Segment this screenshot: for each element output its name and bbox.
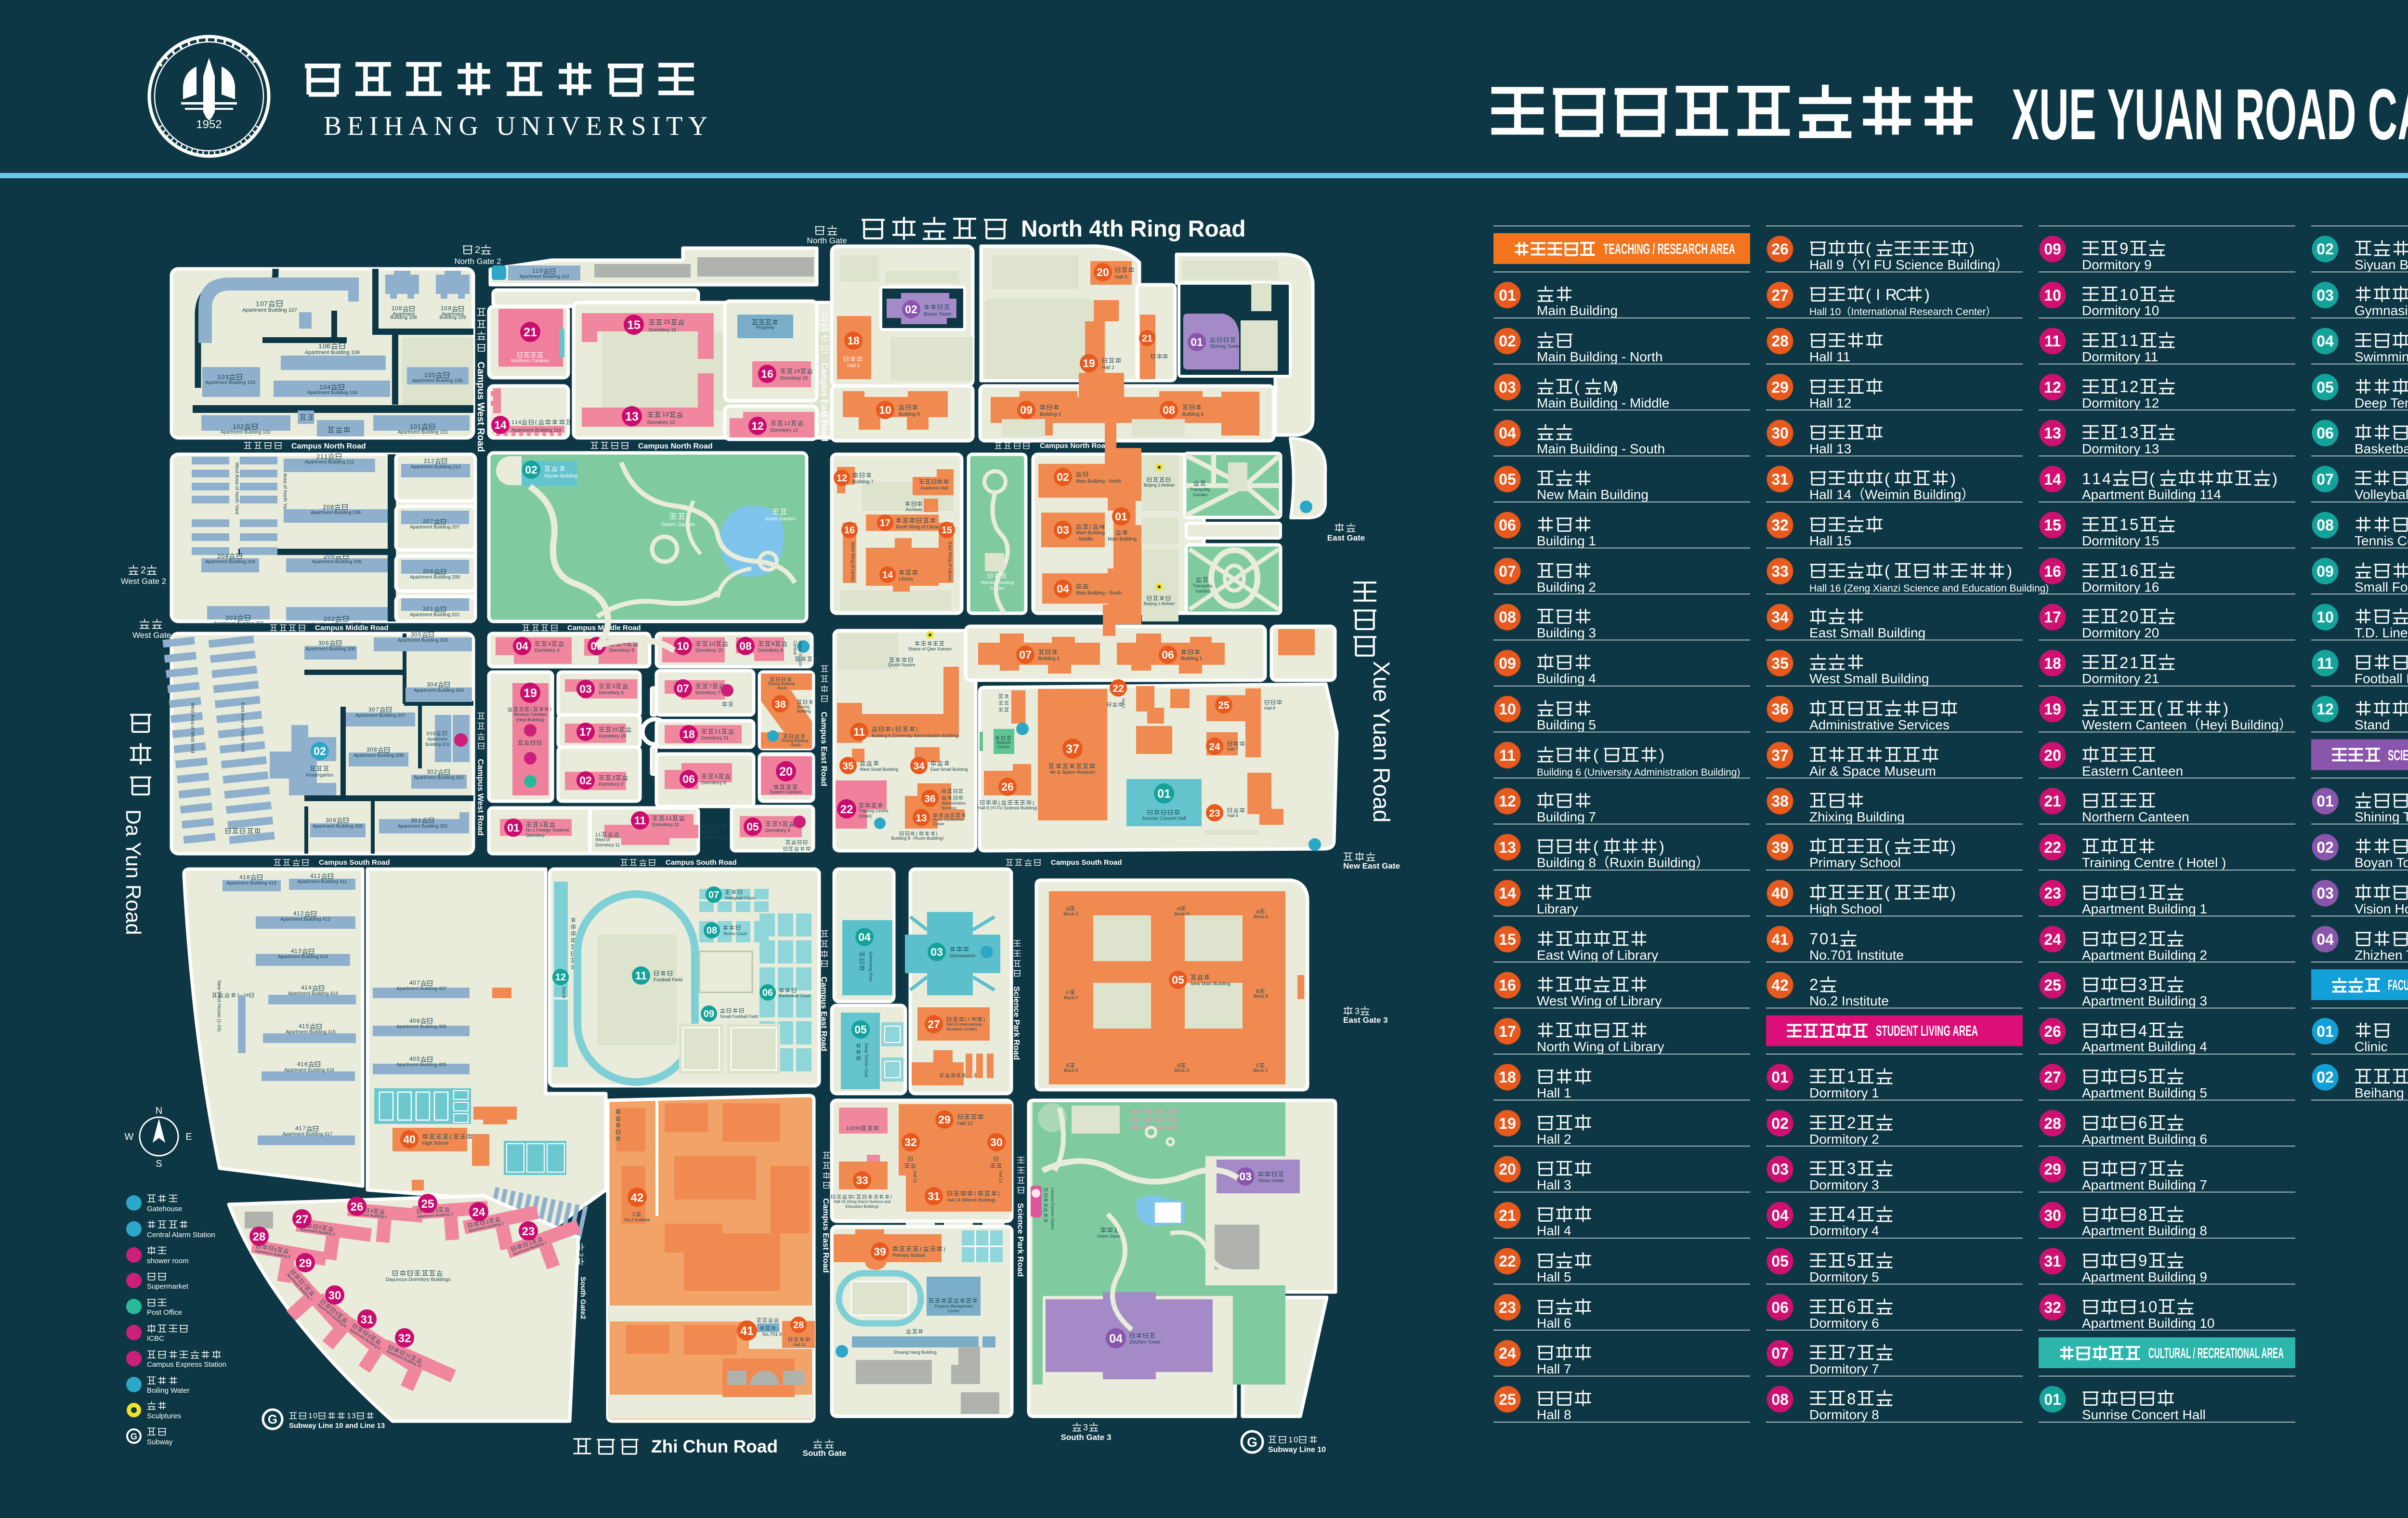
svg-text:Subway Line 10: Subway Line 10	[1268, 1446, 1326, 1454]
svg-text:Block A: Block A	[1254, 914, 1268, 919]
svg-text:Education Building): Education Building)	[846, 1204, 879, 1209]
svg-text:FACULTY / STAFF RESIDENTIAL AR: FACULTY / STAFF RESIDENTIAL AREA	[2388, 977, 2408, 994]
svg-text:New Main Building: New Main Building	[1191, 981, 1230, 987]
svg-text:4: 4	[409, 1056, 413, 1062]
svg-text:12: 12	[2044, 379, 2061, 396]
svg-text:1: 1	[515, 420, 518, 425]
svg-text:41: 41	[1771, 931, 1789, 948]
svg-text:Apartment Building 114: Apartment Building 114	[2082, 487, 2221, 502]
svg-text:03: 03	[2316, 287, 2334, 304]
svg-text:SCIENCE PARK: SCIENCE PARK	[2388, 747, 2408, 764]
svg-text:3: 3	[612, 684, 615, 689]
svg-text:Campus South Road: Campus South Road	[319, 858, 390, 867]
svg-text:(: (	[892, 726, 894, 732]
svg-text:0: 0	[414, 423, 417, 430]
svg-text:Block B: Block B	[1254, 994, 1269, 999]
svg-text:Campus North Road: Campus North Road	[1040, 442, 1110, 450]
svg-text:Campus North Road: Campus North Road	[638, 442, 713, 450]
svg-text:27: 27	[2044, 1069, 2061, 1086]
svg-text:Main Building: Main Building	[1076, 530, 1105, 536]
svg-text:Post Office: Post Office	[147, 1308, 182, 1317]
svg-text:08: 08	[1771, 1391, 1789, 1408]
svg-text:02: 02	[1499, 332, 1516, 350]
svg-text:Block H: Block H	[1174, 911, 1189, 916]
svg-text:Building 7: Building 7	[852, 479, 874, 485]
svg-text:03: 03	[1771, 1161, 1789, 1178]
svg-text:Campus Express Station: Campus Express Station	[1050, 1188, 1055, 1230]
svg-text:Block G: Block G	[1063, 911, 1079, 916]
svg-text:06: 06	[1162, 648, 1174, 661]
svg-text:27: 27	[296, 1213, 309, 1226]
svg-text:Apartment Building 205: Apartment Building 205	[312, 559, 362, 565]
svg-text:Apartment Building 207: Apartment Building 207	[410, 525, 460, 530]
svg-text:2: 2	[225, 614, 229, 621]
svg-text:27: 27	[1771, 287, 1789, 304]
svg-text:Apartment Building 103: Apartment Building 103	[205, 380, 255, 385]
svg-text:): )	[1969, 239, 1975, 257]
svg-text:Hall 10（International Research: Hall 10（International Research Center）	[1809, 306, 1996, 317]
svg-text:0: 0	[372, 706, 375, 713]
svg-text:7: 7	[302, 1125, 306, 1132]
svg-text:2: 2	[331, 615, 335, 622]
svg-text:New East Gate: New East Gate	[1343, 861, 1400, 871]
svg-text:22: 22	[2044, 839, 2061, 856]
svg-text:No.1 Foreign Students: No.1 Foreign Students	[526, 828, 570, 832]
svg-text:3: 3	[427, 768, 430, 775]
svg-text:24: 24	[1499, 1345, 1516, 1362]
svg-text:Apartment Building 4: Apartment Building 4	[2082, 1039, 2207, 1054]
svg-text:(Heyi Building): (Heyi Building)	[516, 717, 545, 722]
svg-text:0: 0	[322, 640, 325, 647]
svg-text:20: 20	[779, 765, 793, 779]
svg-text:04: 04	[1499, 424, 1516, 442]
svg-text:East Small Building: East Small Building	[930, 767, 968, 772]
svg-text:Dormitory 11: Dormitory 11	[2082, 349, 2158, 364]
svg-text:3: 3	[1847, 1160, 1856, 1177]
svg-text:Main Building - South: Main Building - South	[1076, 591, 1122, 596]
svg-text:6: 6	[304, 1061, 308, 1068]
svg-text:1: 1	[2092, 470, 2101, 488]
svg-text:Apartment Building 1: Apartment Building 1	[2082, 901, 2207, 916]
svg-text:04: 04	[1057, 582, 1069, 595]
svg-text:1: 1	[2120, 562, 2128, 580]
svg-text:01: 01	[2316, 1023, 2334, 1040]
svg-text:Building 4: Building 4	[1537, 671, 1596, 686]
svg-text:20: 20	[1499, 1161, 1516, 1178]
svg-text:Campus East Road: Campus East Road	[820, 362, 829, 441]
svg-text:Garden: Garden	[1193, 492, 1207, 497]
svg-text:2: 2	[632, 1212, 635, 1217]
svg-text:North Gate 2: North Gate 2	[454, 257, 501, 266]
svg-text:7: 7	[1809, 930, 1818, 948]
svg-text:09: 09	[704, 1009, 714, 1019]
svg-text:Stand: Stand	[562, 987, 566, 998]
svg-text:40: 40	[403, 1133, 416, 1146]
svg-text:4: 4	[409, 979, 413, 986]
svg-text:South Gate: South Gate	[803, 1449, 847, 1458]
svg-text:Siyuan Building: Siyuan Building	[544, 474, 577, 479]
svg-text:11: 11	[634, 814, 646, 827]
svg-text:1: 1	[718, 729, 721, 735]
svg-text:13: 13	[625, 410, 639, 423]
svg-text:Building 2: Building 2	[1038, 656, 1060, 661]
svg-text:T.D. Line: T.D. Line	[2355, 625, 2408, 640]
svg-text:6: 6	[715, 774, 718, 779]
svg-text:06: 06	[1771, 1299, 1789, 1316]
svg-text:CULTURAL / RECREATIONAL AREA: CULTURAL / RECREATIONAL AREA	[2148, 1346, 2284, 1362]
svg-text:19: 19	[1499, 1115, 1516, 1132]
svg-text:(: (	[1885, 884, 1890, 901]
svg-text:(: (	[535, 420, 537, 425]
svg-text:7: 7	[430, 518, 433, 525]
svg-text:18: 18	[1499, 1069, 1516, 1086]
svg-text:34: 34	[1771, 608, 1789, 626]
svg-text:2: 2	[424, 458, 427, 464]
svg-text:1: 1	[297, 910, 300, 917]
svg-text:1: 1	[2138, 884, 2147, 901]
svg-text:Vision Hotel: Vision Hotel	[2355, 901, 2408, 916]
svg-text:1: 1	[430, 606, 433, 612]
svg-text:(: (	[1885, 470, 1890, 488]
svg-text:Central: Central	[793, 641, 798, 655]
svg-text:24: 24	[1209, 741, 1220, 752]
svg-text:Western Canteen: Western Canteen	[513, 712, 547, 717]
svg-text:Garden: Garden	[1195, 589, 1210, 594]
svg-text:1: 1	[1847, 1068, 1856, 1085]
svg-text:1: 1	[424, 371, 428, 379]
svg-text:5: 5	[417, 1056, 420, 1062]
svg-text:Block C: Block C	[1253, 1068, 1269, 1073]
svg-text:0: 0	[414, 817, 418, 824]
svg-text:08: 08	[1163, 404, 1175, 416]
svg-text:35: 35	[1771, 655, 1789, 672]
svg-text:28: 28	[1771, 332, 1789, 350]
svg-text:Building 6 (University Admini: Building 6 (University Administration Bu…	[1537, 767, 1741, 778]
svg-text:East Gate: East Gate	[1327, 533, 1365, 542]
svg-text:Apartment Building 301: Apartment Building 301	[398, 824, 448, 829]
svg-text:02: 02	[1057, 471, 1069, 483]
svg-text:Dormitory 4: Dormitory 4	[535, 648, 560, 653]
svg-text:2: 2	[324, 553, 327, 560]
svg-text:0: 0	[327, 553, 331, 560]
svg-text:Administrative Services: Administrative Services	[1809, 717, 1950, 732]
svg-text:4: 4	[409, 1017, 413, 1024]
svg-text:West Area of West Yard: West Area of West Yard	[190, 702, 195, 753]
svg-text:1: 1	[794, 369, 797, 374]
svg-text:- Middle: - Middle	[1076, 537, 1093, 542]
svg-text:Small Football Field: Small Football Field	[720, 1014, 758, 1019]
svg-text:Boyan Tower: Boyan Tower	[924, 312, 952, 317]
svg-text:Campus Middle Road: Campus Middle Road	[315, 624, 389, 632]
svg-text:1: 1	[320, 453, 324, 460]
svg-text:0: 0	[395, 305, 398, 312]
svg-text:08: 08	[707, 925, 717, 936]
svg-text:Deep Tennis Club: Deep Tennis Club	[2355, 396, 2408, 410]
svg-text:11: 11	[853, 726, 865, 738]
svg-text:Hall 12: Hall 12	[957, 1121, 973, 1126]
svg-text:): )	[1613, 378, 1618, 396]
svg-text:7: 7	[417, 979, 420, 986]
svg-text:34: 34	[913, 761, 925, 772]
svg-text:(: (	[974, 1191, 976, 1197]
svg-text:07: 07	[1499, 563, 1516, 580]
svg-text:5: 5	[331, 553, 335, 560]
svg-text:Zhi Chun Road: Zhi Chun Road	[651, 1437, 778, 1456]
svg-text:18: 18	[2044, 655, 2061, 672]
svg-text:30: 30	[990, 1136, 1003, 1148]
svg-text:Apartment Building 304: Apartment Building 304	[414, 688, 464, 693]
svg-text:0: 0	[260, 300, 264, 307]
svg-text:Apartment Building 101: Apartment Building 101	[398, 430, 448, 435]
svg-text:0: 0	[444, 305, 447, 312]
svg-text:Building 5: Building 5	[1537, 717, 1596, 732]
svg-text:12: 12	[837, 473, 847, 484]
svg-text:4: 4	[301, 984, 304, 991]
svg-text:0: 0	[426, 606, 430, 612]
svg-text:Swimming Pool: Swimming Pool	[868, 951, 873, 981]
svg-text:26: 26	[2044, 1023, 2061, 1040]
svg-text:1: 1	[784, 421, 787, 426]
svg-text:7: 7	[2138, 1160, 2147, 1177]
svg-text:0: 0	[1819, 930, 1828, 948]
svg-text:2: 2	[423, 606, 426, 612]
svg-text:Sculptures: Sculptures	[147, 1412, 181, 1420]
svg-text:0: 0	[426, 568, 430, 575]
svg-text:Apartment Building 308: Apartment Building 308	[353, 753, 404, 758]
svg-text:3: 3	[352, 1412, 356, 1420]
svg-text:Kindergarten: Kindergarten	[306, 773, 333, 778]
svg-text:17: 17	[880, 518, 890, 528]
svg-text:4: 4	[518, 420, 521, 425]
svg-text:Archives: Archives	[906, 507, 923, 512]
svg-text:0: 0	[2130, 607, 2138, 625]
svg-text:Hall 1: Hall 1	[847, 363, 860, 369]
svg-text:C: C	[1896, 286, 1907, 304]
svg-text:E: E	[185, 1132, 192, 1142]
svg-text:09: 09	[1499, 655, 1516, 672]
svg-text:0: 0	[430, 681, 433, 688]
svg-text:Dormitory 8: Dormitory 8	[758, 648, 783, 653]
svg-text:05: 05	[1771, 1253, 1789, 1270]
svg-text:East Gate 3: East Gate 3	[1343, 1016, 1388, 1025]
svg-text:Zhizhen Tower: Zhizhen Tower	[2355, 948, 2408, 963]
svg-text:Zhizhen Tower: Zhizhen Tower	[1129, 1340, 1161, 1345]
svg-text:3: 3	[2130, 423, 2138, 441]
svg-text:1: 1	[299, 1125, 302, 1132]
svg-text:3: 3	[366, 746, 370, 753]
svg-text:Hall 1: Hall 1	[1537, 1085, 1571, 1100]
svg-text:West Wing of Library: West Wing of Library	[1537, 993, 1662, 1008]
svg-text:Dormitory 11: Dormitory 11	[595, 843, 620, 847]
svg-text:Main Building - South: Main Building - South	[1537, 441, 1665, 456]
svg-text:Building 1: Building 1	[1537, 533, 1596, 548]
svg-text:- North: - North	[775, 686, 787, 690]
svg-text:Apartment Building 405: Apartment Building 405	[396, 1062, 446, 1068]
svg-text:Block E: Block E	[1064, 1068, 1079, 1073]
svg-text:1: 1	[2120, 378, 2128, 396]
svg-text:1: 1	[302, 1023, 305, 1030]
svg-text:23: 23	[522, 1225, 535, 1238]
svg-text:1: 1	[317, 872, 321, 879]
svg-text:(: (	[1866, 286, 1871, 304]
svg-text:3: 3	[233, 614, 236, 621]
svg-text:Supermarket: Supermarket	[147, 1282, 189, 1291]
svg-text:(: (	[530, 707, 532, 712]
svg-text:Building 4: Building 4	[1040, 412, 1061, 417]
svg-text:Building 7: Building 7	[1537, 809, 1596, 824]
svg-text:2: 2	[431, 458, 434, 464]
svg-text:2: 2	[2120, 607, 2128, 625]
svg-text:16: 16	[1499, 977, 1516, 994]
svg-text:32: 32	[398, 1332, 411, 1345]
svg-text:Basketball Court: Basketball Court	[2355, 441, 2408, 456]
svg-text:Apartment Building 411: Apartment Building 411	[297, 879, 347, 884]
svg-text:Dormitory 6: Dormitory 6	[1809, 1316, 1879, 1331]
svg-text:Dormitory 2: Dormitory 2	[599, 782, 624, 787]
svg-text:03: 03	[1239, 1170, 1252, 1183]
svg-text:2: 2	[475, 245, 480, 255]
svg-text:Block F: Block F	[1064, 995, 1079, 1000]
svg-text:1: 1	[532, 267, 536, 274]
svg-text:0: 0	[426, 518, 430, 525]
svg-text:shower room: shower room	[147, 1257, 189, 1265]
svg-text:Apartment Building 104: Apartment Building 104	[307, 390, 357, 396]
svg-text:8: 8	[1847, 1390, 1856, 1408]
svg-text:6: 6	[1847, 1298, 1856, 1316]
svg-text:1: 1	[418, 423, 421, 430]
svg-text:0: 0	[2130, 286, 2138, 304]
svg-text:No.2 Institute: No.2 Institute	[624, 1217, 650, 1222]
svg-text:1: 1	[308, 1412, 313, 1420]
svg-text:Building 6 (University Admini: Building 6 (University Administration Bu…	[872, 733, 959, 738]
svg-text:32: 32	[1771, 516, 1789, 534]
svg-text:01: 01	[2044, 1391, 2061, 1408]
svg-text:South Gate2: South Gate2	[579, 1277, 587, 1319]
svg-text:05: 05	[1172, 974, 1184, 986]
svg-text:36: 36	[924, 793, 935, 805]
svg-text:0: 0	[313, 1412, 317, 1420]
svg-text:19: 19	[1083, 357, 1095, 370]
svg-text:Dormitory 2: Dormitory 2	[1809, 1132, 1879, 1147]
svg-text:6: 6	[417, 1017, 420, 1024]
svg-text:Shuang Hang Building: Shuang Hang Building	[893, 1350, 937, 1355]
svg-text:Hall 14 (Weimin Building): Hall 14 (Weimin Building)	[947, 1198, 995, 1202]
svg-text:02: 02	[314, 745, 326, 757]
svg-text:Alarm Station: Alarm Station	[798, 641, 803, 667]
svg-text:Dayuncun Dormitory Buildings: Dayuncun Dormitory Buildings	[386, 1277, 451, 1282]
svg-text:Apartment Building 203: Apartment Building 203	[213, 621, 263, 626]
svg-text:Apartment Building 204: Apartment Building 204	[205, 559, 255, 565]
svg-text:Hall 3: Hall 3	[1115, 275, 1127, 280]
svg-text:Apartment Building 416: Apartment Building 416	[284, 1068, 334, 1073]
svg-text:Apartment Building 208: Apartment Building 208	[311, 510, 361, 515]
svg-text:21: 21	[1499, 1207, 1516, 1224]
svg-text:(: (	[920, 1246, 922, 1252]
svg-text:6: 6	[797, 369, 800, 374]
svg-text:1: 1	[318, 342, 322, 350]
svg-text:25: 25	[421, 1198, 434, 1211]
svg-text:4: 4	[295, 1125, 299, 1132]
svg-text:Hall 9 (YI FU Science Buildin: Hall 9 (YI FU Science Building)	[978, 805, 1037, 810]
svg-text:Dormitory 4: Dormitory 4	[1809, 1223, 1879, 1238]
svg-text:Gatehouse: Gatehouse	[147, 1205, 182, 1213]
svg-text:Center: Center	[933, 822, 944, 826]
svg-text:Sunrise Concert Hall: Sunrise Concert Hall	[1142, 816, 1186, 821]
svg-text:TEACHING / RESEARCH AREA: TEACHING / RESEARCH AREA	[1603, 241, 1735, 257]
svg-text:7: 7	[1847, 1344, 1856, 1361]
svg-text:12: 12	[751, 420, 764, 432]
svg-text:Dormitory 20: Dormitory 20	[2082, 625, 2159, 640]
svg-text:Hall 12: Hall 12	[1809, 396, 1851, 410]
svg-text:03: 03	[2316, 884, 2334, 902]
svg-text:30: 30	[328, 1289, 341, 1302]
svg-text:XUE YUAN ROAD CAMPUS PLAN: XUE YUAN ROAD CAMPUS PLAN	[2012, 74, 2408, 155]
svg-text:1: 1	[2120, 331, 2128, 349]
svg-text:Hall 6: Hall 6	[1227, 813, 1238, 818]
svg-text:1: 1	[347, 1412, 351, 1420]
svg-text:Building 3: Building 3	[1537, 625, 1596, 640]
svg-text:3: 3	[318, 640, 322, 647]
svg-text:Hall 11: Hall 11	[1809, 349, 1850, 364]
svg-text:3: 3	[326, 817, 329, 824]
svg-text:): )	[1924, 286, 1930, 304]
svg-text:01: 01	[507, 821, 520, 834]
svg-text:Dormitory 21: Dormitory 21	[2082, 671, 2159, 686]
svg-text:6: 6	[2138, 1114, 2147, 1132]
svg-text:03: 03	[1499, 379, 1516, 396]
svg-text:Building 8（Ruxin Building）: Building 8（Ruxin Building）	[891, 836, 946, 841]
svg-text:2: 2	[323, 503, 326, 511]
svg-text:1: 1	[2130, 331, 2138, 349]
svg-text:Dormitory 9: Dormitory 9	[2082, 257, 2152, 272]
svg-text:Building: Building	[797, 709, 811, 713]
svg-text:5: 5	[667, 318, 670, 325]
svg-text:9: 9	[448, 305, 451, 312]
svg-text:Apartment Building 110: Apartment Building 110	[519, 274, 569, 279]
svg-text:Eastern Canteen: Eastern Canteen	[770, 790, 802, 794]
svg-text:Da Yun Road: Da Yun Road	[121, 809, 145, 935]
svg-text:21: 21	[2044, 792, 2061, 810]
svg-text:0: 0	[2148, 1298, 2157, 1316]
svg-text:Hall 6: Hall 6	[1537, 1316, 1571, 1331]
svg-text:Apartment Building 5: Apartment Building 5	[2082, 1085, 2207, 1100]
svg-text:10: 10	[2044, 287, 2061, 304]
svg-text:20: 20	[2044, 747, 2061, 764]
svg-text:Campus East Road: Campus East Road	[819, 977, 828, 1051]
svg-text:): )	[2007, 562, 2012, 580]
svg-text:Apartment Building 307: Apartment Building 307	[355, 713, 406, 718]
svg-text:1: 1	[536, 267, 539, 274]
svg-text:BEIHANG UNIVERSITY: BEIHANG UNIVERSITY	[324, 111, 713, 141]
svg-text:3: 3	[298, 948, 301, 954]
svg-text:13: 13	[1499, 839, 1516, 856]
svg-text:29: 29	[299, 1257, 312, 1270]
svg-text:Hall 13: Hall 13	[998, 1171, 1003, 1183]
svg-text:Building 8（Ruxin Building）: Building 8（Ruxin Building）	[1537, 855, 1709, 870]
svg-text:STUDENT LIVING AREA: STUDENT LIVING AREA	[1876, 1023, 1978, 1039]
svg-text:Volleyball Court: Volleyball Court	[725, 896, 755, 900]
svg-text:5: 5	[779, 821, 782, 827]
svg-text:Dormitory 16: Dormitory 16	[780, 376, 808, 381]
svg-text:Northern Canteen: Northern Canteen	[511, 358, 550, 364]
svg-text:36: 36	[1771, 700, 1789, 718]
svg-text:): )	[2223, 700, 2228, 717]
svg-text:West Area of North Yard: West Area of North Yard	[234, 462, 239, 514]
svg-text:37: 37	[1771, 747, 1789, 764]
svg-text:3: 3	[427, 681, 430, 688]
svg-text:Dormitory 16: Dormitory 16	[2082, 580, 2159, 594]
svg-text:Gymnasium: Gymnasium	[2355, 303, 2408, 318]
